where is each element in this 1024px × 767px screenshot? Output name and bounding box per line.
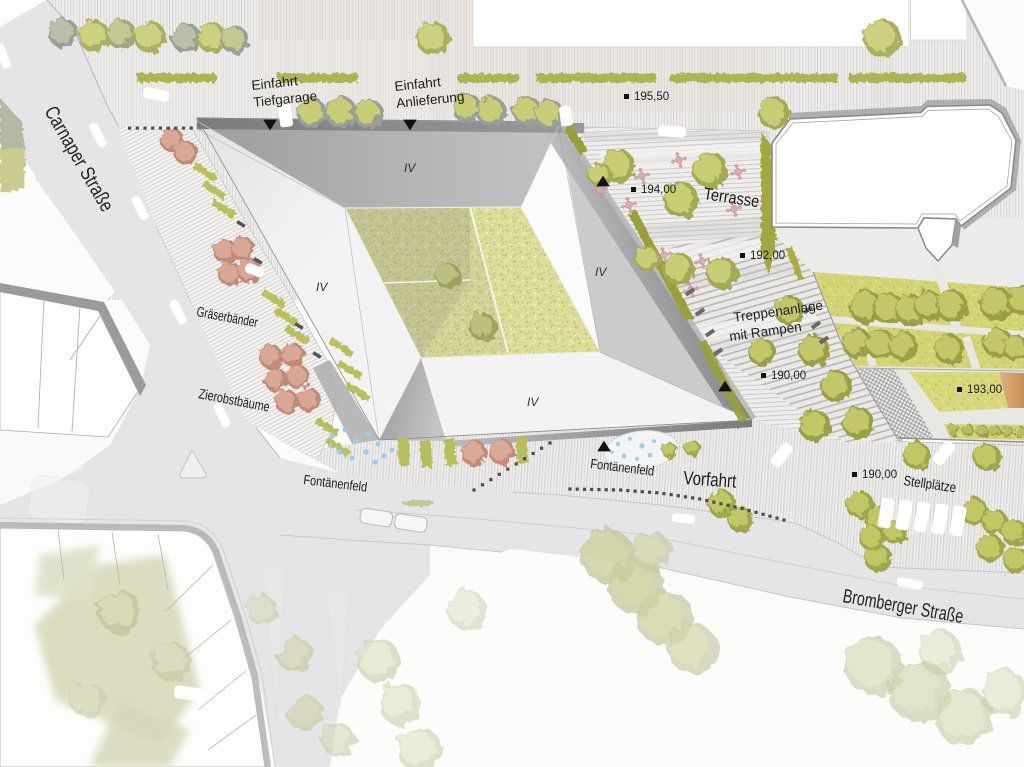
svg-text:193,00: 193,00	[967, 384, 1002, 396]
svg-text:IV: IV	[595, 265, 607, 279]
svg-text:192,00: 192,00	[750, 250, 785, 262]
svg-text:190,00: 190,00	[771, 370, 806, 382]
svg-text:IV: IV	[404, 161, 416, 175]
svg-text:190,00: 190,00	[862, 469, 897, 481]
svg-text:IV: IV	[527, 395, 539, 409]
svg-text:Vorfahrt: Vorfahrt	[683, 468, 738, 493]
svg-text:IV: IV	[316, 280, 328, 294]
svg-text:194,00: 194,00	[641, 184, 676, 196]
svg-text:195,50: 195,50	[634, 91, 669, 103]
